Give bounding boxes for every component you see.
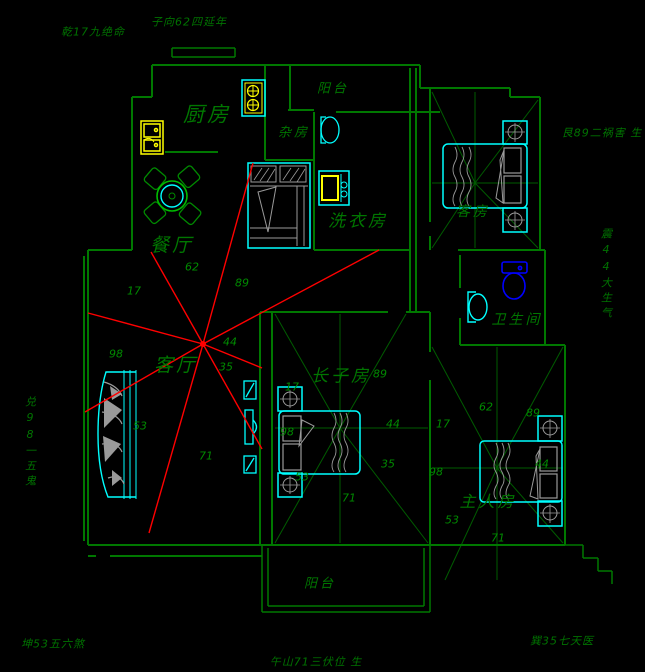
label-balcony-bottom: 阳台 — [304, 578, 336, 591]
label-dining-room: 餐厅 — [150, 237, 194, 256]
sector-number: 35 — [219, 362, 233, 373]
floor-plan-drawing — [0, 0, 645, 672]
sector-number: 17 — [436, 419, 450, 430]
label-living-room: 客厅 — [154, 357, 198, 376]
hall-bed-icon — [248, 163, 310, 248]
sink-icon — [141, 121, 163, 154]
sector-number: 17 — [127, 286, 141, 297]
son-bed-icon — [278, 387, 360, 497]
sector-number: 62 — [185, 262, 199, 273]
door-symbol — [244, 456, 256, 473]
stove-icon — [242, 80, 265, 116]
label-eldest-son-room: 长子房 — [311, 369, 371, 386]
sector-number: 44 — [223, 337, 237, 348]
star-center-dot — [200, 341, 206, 347]
sector-number: 53 — [295, 472, 309, 483]
floor-plan: 乾17九绝命 子向62四延年 艮89二祸害 生 震44大生气 兑98一五鬼 坤5… — [0, 0, 645, 672]
guest-room-star — [432, 92, 538, 248]
sector-number: 98 — [429, 467, 443, 478]
sector-number: 71 — [491, 533, 505, 544]
label-north-sector: 子向62四延年 — [151, 17, 227, 28]
label-guest-room: 客房 — [456, 205, 490, 219]
sector-number: 71 — [199, 451, 213, 462]
toilet-icon — [502, 262, 527, 299]
door-symbol — [245, 410, 257, 444]
sector-number: 35 — [381, 459, 395, 470]
washer-basin-icon — [321, 117, 339, 143]
label-northeast-sector: 艮89二祸害 生 — [562, 128, 643, 139]
sector-number: 53 — [445, 515, 459, 526]
label-southwest-sector: 坤53五六煞 — [21, 639, 85, 650]
label-storage: 杂房 — [278, 127, 310, 140]
washing-machine-icon — [319, 171, 349, 205]
label-south-sector: 午山71三伏位 生 — [270, 657, 363, 668]
sector-number: 71 — [342, 493, 356, 504]
sector-number: 17 — [285, 382, 299, 393]
label-balcony-top: 阳台 — [317, 83, 349, 96]
door-symbol — [244, 381, 256, 399]
label-bathroom: 卫生间 — [492, 313, 543, 327]
label-southeast-sector: 巽35七天医 — [530, 636, 594, 647]
son-room-star — [275, 314, 428, 543]
dining-table-icon — [143, 165, 202, 226]
sector-number: 44 — [386, 419, 400, 430]
sector-number: 89 — [526, 408, 540, 419]
sector-number: 89 — [373, 369, 387, 380]
sector-number: 62 — [479, 402, 493, 413]
sector-number: 53 — [133, 421, 147, 432]
label-northwest-sector: 乾17九绝命 — [61, 27, 125, 38]
wash-basin-icon — [468, 292, 487, 322]
label-east-sector: 震44大生气 — [601, 228, 612, 322]
label-west-sector: 兑98一五鬼 — [25, 396, 36, 490]
sector-number: 98 — [109, 349, 123, 360]
sector-number: 89 — [235, 278, 249, 289]
label-master-room: 主人房 — [459, 494, 516, 510]
sofa-icon — [98, 370, 136, 499]
sector-number: 44 — [535, 459, 549, 470]
label-laundry: 洗衣房 — [328, 214, 388, 231]
sector-number: 98 — [280, 427, 294, 438]
label-kitchen: 厨房 — [183, 105, 231, 126]
